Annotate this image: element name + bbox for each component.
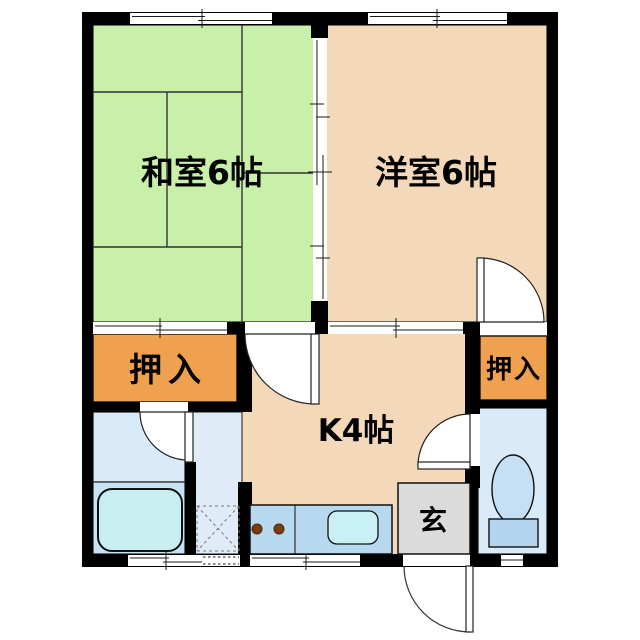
wall-left <box>82 12 93 567</box>
kitchen-sink <box>328 511 378 544</box>
floor-plan-canvas: 和室6帖 洋室6帖 K4帖 押入 押入 玄 <box>0 0 640 640</box>
washitsu-label: 和室6帖 <box>141 153 263 192</box>
vent-corridor <box>202 555 240 566</box>
closet-left-label: 押入 <box>129 350 207 389</box>
wall-bath-corridor <box>185 462 196 554</box>
door-leaf-entrance <box>466 566 473 632</box>
floor-plan-svg: 和室6帖 洋室6帖 K4帖 押入 押入 玄 <box>0 0 640 640</box>
wall-post <box>311 25 328 38</box>
stove-burner-icon <box>252 524 262 534</box>
door-leaf <box>185 412 193 462</box>
stove-burner-icon <box>274 524 284 534</box>
doorway-washitsu-kitchen <box>245 322 315 334</box>
yoshitsu-label: 洋室6帖 <box>375 153 497 192</box>
door-leaf <box>311 334 319 404</box>
door-leaf <box>418 462 470 469</box>
closet-right-label: 押入 <box>486 355 542 385</box>
doorway-closet-right <box>480 322 547 334</box>
kitchen-label: K4帖 <box>318 413 395 449</box>
wall-right <box>547 12 558 567</box>
doorway-changing-room <box>140 402 188 412</box>
wall-genkan-toilet <box>470 483 478 554</box>
wall-kitchen-right-upper <box>465 322 480 414</box>
window-toilet <box>501 555 523 566</box>
toilet-bowl <box>492 455 534 523</box>
window-glass <box>250 555 360 566</box>
doorway-entrance <box>403 554 470 566</box>
bathtub <box>98 489 182 551</box>
sliding-door-leaf <box>313 38 327 301</box>
window-glass <box>130 13 272 24</box>
genkan-label: 玄 <box>419 504 447 537</box>
toilet-tank <box>489 519 538 547</box>
door-leaf <box>477 258 484 322</box>
